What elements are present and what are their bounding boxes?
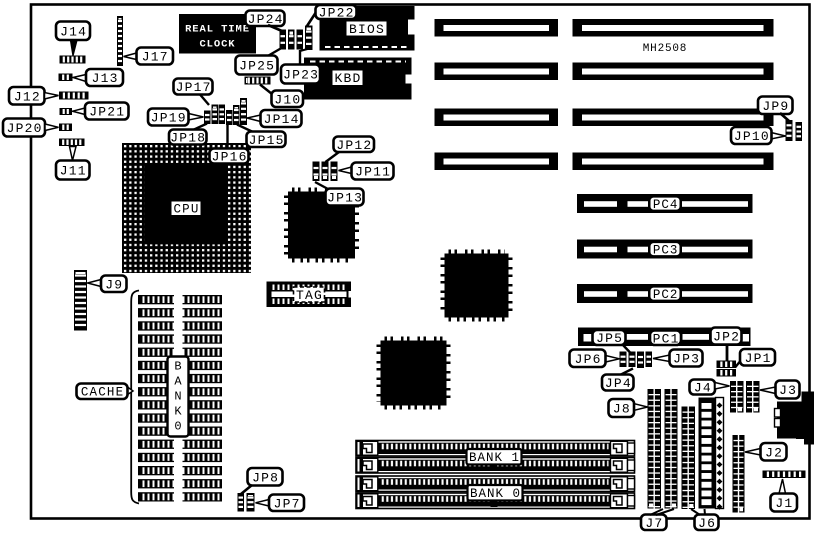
svg-text:JP1: JP1 <box>745 351 772 366</box>
svg-text:JP10: JP10 <box>734 129 770 144</box>
svg-text:KBD: KBD <box>334 71 361 86</box>
svg-text:J3: J3 <box>779 383 797 398</box>
svg-text:JP17: JP17 <box>176 80 212 95</box>
svg-text:CPU: CPU <box>173 203 199 217</box>
svg-text:J13: J13 <box>92 71 119 86</box>
svg-text:J6: J6 <box>698 516 716 531</box>
svg-text:JP5: JP5 <box>596 331 623 346</box>
svg-text:J9: J9 <box>105 277 123 292</box>
svg-text:JP24: JP24 <box>248 12 284 27</box>
svg-text:J12: J12 <box>14 89 41 104</box>
svg-text:J8: J8 <box>613 402 631 417</box>
svg-text:JP21: JP21 <box>89 105 125 120</box>
svg-text:JP14: JP14 <box>264 112 300 127</box>
svg-text:REAL TIME: REAL TIME <box>185 24 250 36</box>
svg-text:J17: J17 <box>142 50 169 65</box>
svg-text:JP16: JP16 <box>212 150 248 165</box>
svg-text:N: N <box>174 390 181 404</box>
svg-text:TAG: TAG <box>296 288 323 303</box>
svg-text:JP3: JP3 <box>673 352 700 367</box>
svg-text:J14: J14 <box>60 24 87 39</box>
svg-text:J10: J10 <box>274 92 301 107</box>
svg-text:JP4: JP4 <box>605 376 632 391</box>
svg-text:PC4: PC4 <box>653 198 679 212</box>
svg-text:JP18: JP18 <box>170 131 206 146</box>
svg-text:JP19: JP19 <box>151 111 187 126</box>
svg-text:CLOCK: CLOCK <box>199 39 235 51</box>
svg-text:JP13: JP13 <box>327 191 363 206</box>
svg-text:B: B <box>174 360 181 374</box>
svg-text:BANK 1: BANK 1 <box>469 451 520 465</box>
svg-text:JP7: JP7 <box>274 496 301 511</box>
svg-text:JP8: JP8 <box>252 470 279 485</box>
svg-text:JP23: JP23 <box>283 68 319 83</box>
svg-text:JP9: JP9 <box>762 99 789 114</box>
svg-text:BIOS: BIOS <box>349 22 385 37</box>
svg-text:MH2508: MH2508 <box>643 43 687 55</box>
svg-text:JP12: JP12 <box>336 138 372 153</box>
svg-text:PC3: PC3 <box>653 243 679 257</box>
svg-text:J2: J2 <box>765 445 783 460</box>
svg-text:J11: J11 <box>60 164 87 179</box>
svg-text:JP11: JP11 <box>355 165 391 180</box>
svg-text:BANK 0: BANK 0 <box>470 487 521 501</box>
svg-text:PC2: PC2 <box>653 288 679 302</box>
svg-text:JP2: JP2 <box>713 330 740 345</box>
svg-text:JP20: JP20 <box>7 121 43 136</box>
svg-text:J1: J1 <box>775 496 793 511</box>
svg-text:JP6: JP6 <box>575 352 602 367</box>
svg-text:J4: J4 <box>694 381 712 396</box>
svg-text:J7: J7 <box>645 516 663 531</box>
svg-text:CACHE: CACHE <box>81 386 125 400</box>
svg-text:JP22: JP22 <box>319 6 355 21</box>
svg-text:0: 0 <box>174 420 181 434</box>
svg-text:JP25: JP25 <box>239 59 275 74</box>
svg-text:A: A <box>174 375 182 389</box>
svg-text:K: K <box>174 405 182 419</box>
svg-text:JP15: JP15 <box>249 133 285 148</box>
svg-text:PC1: PC1 <box>653 331 680 346</box>
